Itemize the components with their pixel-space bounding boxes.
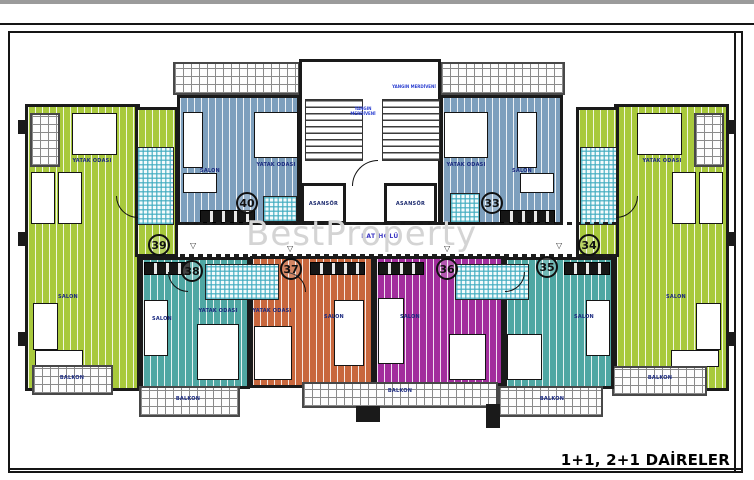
room-label-bedroom-39: YATAK ODASI	[70, 158, 114, 164]
unit-number-38: 38	[181, 260, 203, 282]
room-label-salon-33: SALON	[506, 168, 538, 174]
room-label-bedroom-37: YATAK ODASI	[252, 308, 292, 314]
room-label-bedroom-38: YATAK ODASI	[198, 308, 238, 314]
room-label-salon-38: SALON	[146, 316, 178, 322]
kitchen-counter-unit37	[310, 262, 365, 275]
sheet-title: 1+1, 2+1 DAİRELER	[430, 451, 730, 469]
unit-number-39: 39	[148, 234, 170, 256]
room-label-balcony-34: BALKON	[644, 375, 676, 381]
bed-unit36	[449, 334, 486, 380]
bed-single-unit34-a	[699, 172, 723, 224]
bathroom-unit39	[137, 147, 174, 225]
room-label-salon-37: SALON	[318, 314, 350, 320]
room-label-salon-35: SALON	[568, 314, 600, 320]
room-label-salon-36: SALON	[394, 314, 426, 320]
sheet-inner-right-rule	[734, 33, 736, 471]
elevator-right-label: ASANSÖR	[396, 201, 425, 207]
bed-single-unit34-b	[672, 172, 696, 224]
bed-unit33	[444, 112, 488, 158]
room-label-bedroom-40: YATAK ODASI	[256, 162, 296, 168]
bed-double-unit39	[72, 113, 117, 155]
sofa-unit40	[183, 112, 203, 168]
wall-stub-right-2	[728, 232, 736, 246]
sofa-unit35	[586, 300, 610, 356]
room-label-balcony-center: BALKON	[384, 388, 416, 394]
wall-stub-left-2	[18, 232, 26, 246]
balcony-grid-center	[302, 382, 498, 408]
sofa-unit37	[334, 300, 364, 366]
kitchen-counter-unit35	[564, 262, 610, 275]
unit-number-33: 33	[481, 192, 503, 214]
kitchen-counter-unit36	[378, 262, 424, 275]
corridor-marker-1: ▽	[190, 242, 196, 250]
floor-plan-page: 1+1, 2+1 DAİRELER YANGIN MERDİVENİ YANGI…	[0, 0, 754, 480]
unit-number-36: 36	[436, 258, 458, 280]
sofa-unit36	[378, 298, 404, 364]
cabinet-unit33	[520, 173, 554, 193]
unit-number-40: 40	[236, 192, 258, 214]
bed-unit40	[254, 112, 298, 158]
sofa-unit38	[144, 300, 168, 356]
bathrooms-units-38-37	[205, 264, 279, 300]
wall-stub-right-3	[728, 332, 736, 346]
terrace-grid-left-edge	[30, 113, 60, 167]
corridor-marker-4: ▽	[556, 242, 562, 250]
watermark: BestProperty	[246, 214, 477, 254]
balcony-divider-stub-2	[486, 404, 500, 428]
bed-double-unit34	[637, 113, 682, 155]
top-rule	[0, 23, 754, 25]
room-label-bedroom-34: YATAK ODASI	[640, 158, 684, 164]
room-label-balcony-38: BALKON	[172, 396, 204, 402]
sofa-unit34-a	[696, 303, 721, 350]
bed-single-unit39-a	[31, 172, 55, 224]
bed-unit37	[254, 326, 292, 380]
wall-stub-left-3	[18, 332, 26, 346]
room-label-balcony-35: BALKON	[536, 396, 568, 402]
cabinet-unit40	[183, 173, 217, 193]
room-label-balcony-39: BALKON	[56, 375, 88, 381]
wall-stub-left-1	[18, 120, 26, 134]
terrace-grid-right-edge	[694, 113, 724, 167]
room-label-salon-39: SALON	[52, 294, 84, 300]
unit-number-34: 34	[578, 234, 600, 256]
roof-terrace-grid-left	[173, 62, 300, 95]
stair-label-left: YANGIN MERDİVENİ	[348, 106, 378, 117]
sofa-unit33	[517, 112, 537, 168]
room-label-salon-34: SALON	[660, 294, 692, 300]
wall-stub-right-1	[728, 120, 736, 134]
sofa-unit34-b	[671, 350, 719, 367]
elevator-left-label: ASANSÖR	[309, 201, 338, 207]
sofa-unit39-a	[33, 303, 58, 350]
unit-number-37: 37	[280, 258, 302, 280]
balcony-divider-stub-1	[356, 406, 380, 422]
room-label-salon-40: SALON	[194, 168, 226, 174]
room-label-bedroom-33: YATAK ODASI	[446, 162, 486, 168]
bed-unit38	[197, 324, 239, 380]
staircase-right	[382, 99, 440, 161]
bed-unit35	[507, 334, 542, 380]
top-window-edge	[0, 0, 754, 4]
roof-terrace-grid-right	[440, 62, 565, 95]
bathroom-unit34	[580, 147, 617, 225]
unit-number-35: 35	[536, 256, 558, 278]
stair-label-right: YANGIN MERDİVENİ	[392, 84, 436, 89]
bed-single-unit39-b	[58, 172, 82, 224]
